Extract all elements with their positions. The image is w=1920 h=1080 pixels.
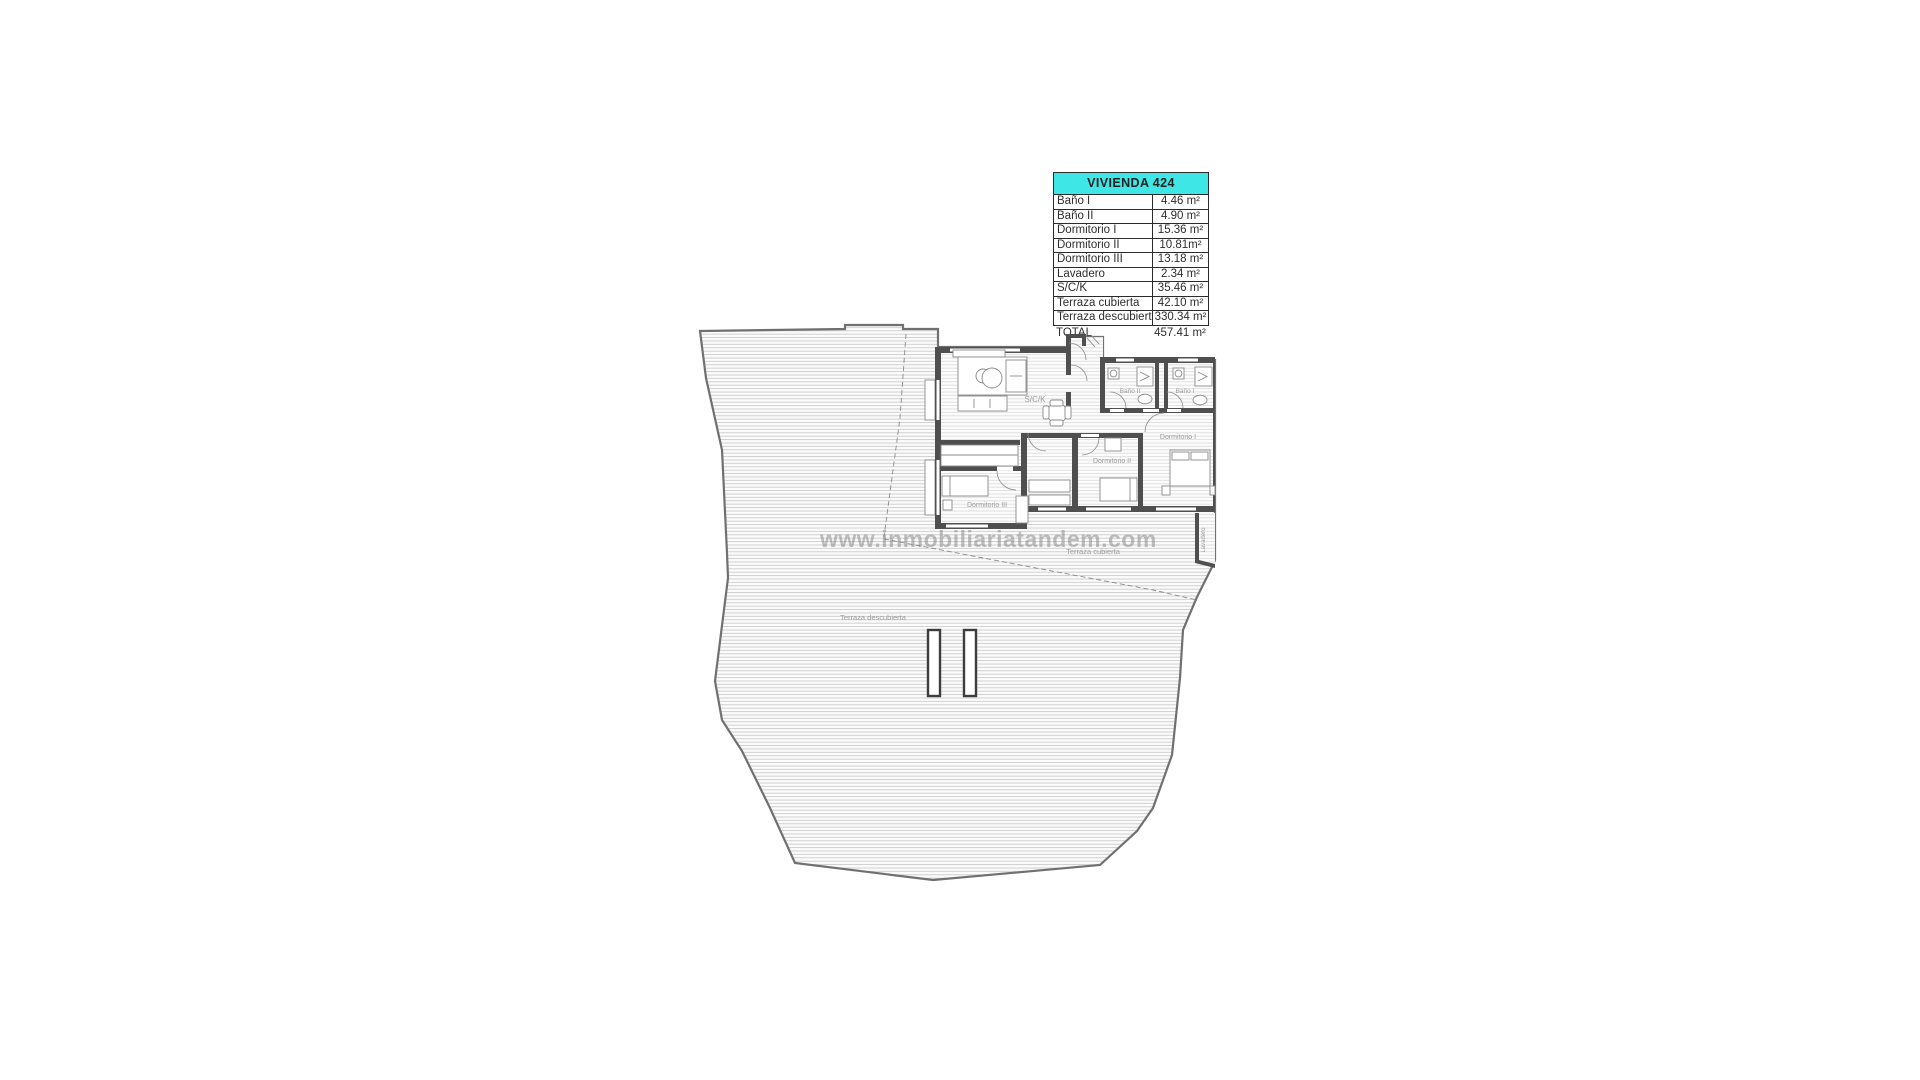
area-value-cell: 4.90 m² bbox=[1153, 210, 1208, 224]
room-name-cell: Dormitorio II bbox=[1054, 239, 1153, 253]
table-row: Lavadero 2.34 m² bbox=[1054, 268, 1208, 283]
area-value-cell: 4.46 m² bbox=[1153, 195, 1208, 209]
label-banyo2: Baño II bbox=[1120, 388, 1141, 395]
area-value-cell: 2.34 m² bbox=[1153, 268, 1208, 282]
area-value-cell: 13.18 m² bbox=[1153, 253, 1208, 267]
table-row: Dormitorio III 13.18 m² bbox=[1054, 253, 1208, 268]
label-sck: S/C/K bbox=[1025, 395, 1047, 404]
label-terraza-descubierta: Terraza descubierta bbox=[840, 613, 907, 622]
window-sill bbox=[925, 380, 935, 420]
table-row: Baño II 4.90 m² bbox=[1054, 210, 1208, 225]
area-summary-table: VIVIENDA 424 Baño I 4.46 m² Baño II 4.90… bbox=[1053, 172, 1209, 341]
window-sill bbox=[925, 460, 935, 515]
watermark-text: www.inmobiliariatandem.com bbox=[820, 526, 1120, 553]
label-dorm2: Dormitorio II bbox=[1093, 458, 1131, 465]
room-name-cell: Dormitorio I bbox=[1054, 224, 1153, 238]
floor-plan: S/C/K Baño II Baño I Dormitorio I Dormit… bbox=[688, 320, 1220, 886]
area-value-cell: 35.46 m² bbox=[1153, 282, 1208, 296]
area-value-cell: 42.10 m² bbox=[1153, 297, 1208, 311]
area-table-box: VIVIENDA 424 Baño I 4.46 m² Baño II 4.90… bbox=[1053, 172, 1209, 326]
label-lavadero: Lavadero bbox=[1201, 527, 1207, 553]
room-name-cell: Terraza cubierta bbox=[1054, 297, 1153, 311]
room-name-cell: Lavadero bbox=[1054, 268, 1153, 282]
area-value-cell: 15.36 m² bbox=[1153, 224, 1208, 238]
table-row: S/C/K 35.46 m² bbox=[1054, 282, 1208, 297]
label-dorm1: Dormitorio I bbox=[1160, 434, 1196, 441]
table-row: Dormitorio I 15.36 m² bbox=[1054, 224, 1208, 239]
area-value-cell: 10.81m² bbox=[1153, 239, 1208, 253]
table-row: Terraza cubierta 42.10 m² bbox=[1054, 297, 1208, 312]
room-name-cell: Dormitorio III bbox=[1054, 253, 1153, 267]
room-name-cell: Baño I bbox=[1054, 195, 1153, 209]
room-name-cell: S/C/K bbox=[1054, 282, 1153, 296]
table-title: VIVIENDA 424 bbox=[1054, 173, 1208, 195]
label-banyo1: Baño I bbox=[1176, 388, 1195, 395]
table-row: Baño I 4.46 m² bbox=[1054, 195, 1208, 210]
room-name-cell: Baño II bbox=[1054, 210, 1153, 224]
page: VIVIENDA 424 Baño I 4.46 m² Baño II 4.90… bbox=[0, 0, 1920, 1080]
label-dorm3: Dormitorio III bbox=[967, 502, 1007, 509]
table-row: Dormitorio II 10.81m² bbox=[1054, 239, 1208, 254]
